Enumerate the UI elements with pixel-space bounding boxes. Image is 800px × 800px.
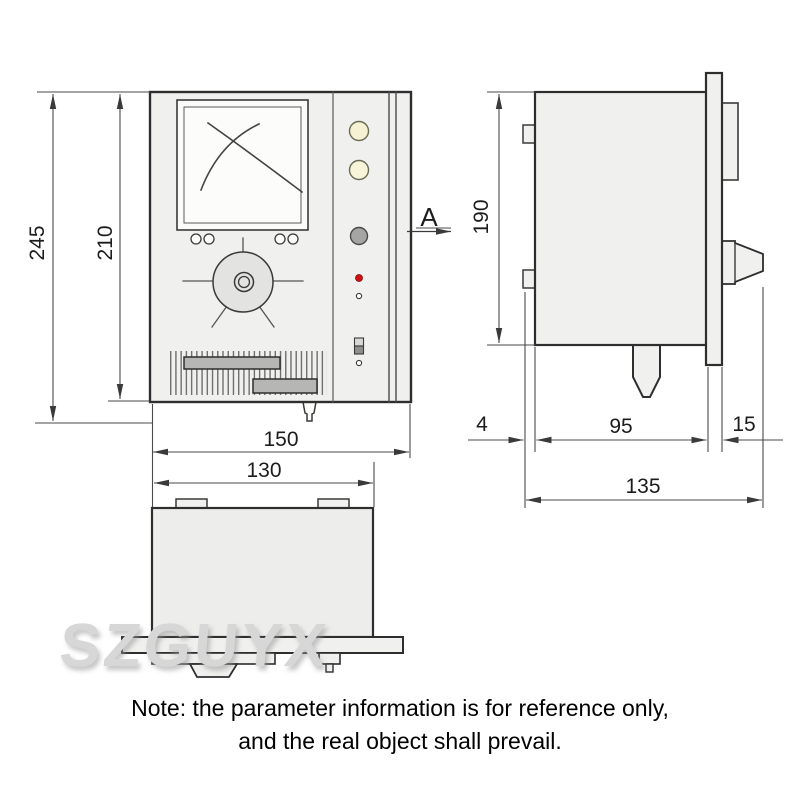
side-body [535,92,707,345]
dim-body-width: 130 [246,459,281,482]
bottom-rail-tab-right [318,499,349,508]
screw-hole [191,234,201,244]
section-view-marker: A [407,202,451,232]
dim-side-body-depth: 95 [609,415,632,438]
drawing-canvas: 245 210 150 130 190 4 95 15 135 A [0,0,800,800]
dim-side-tab-depth: 4 [476,413,488,436]
dim-side-knob-depth: 15 [732,413,755,436]
small-hole-upper [356,293,361,298]
toggle-switch[interactable] [355,338,364,354]
screw-hole [204,234,214,244]
note-line-1: Note: the parameter information is for r… [0,695,800,722]
dim-front-total-height: 245 [26,225,49,260]
small-hole-lower [356,360,361,365]
meter-display-screen [184,107,301,223]
side-bottom-pointer [633,345,660,397]
terminal-bar-lower [253,379,317,393]
front-bottom-tab [303,402,316,421]
side-view [523,73,763,397]
indicator-lamp-top [350,122,369,141]
led-red [356,275,363,282]
technical-drawing-page: 245 210 150 130 190 4 95 15 135 A SZGUYX… [0,0,800,800]
dial-knob[interactable] [213,252,273,312]
side-connector-block [722,103,738,180]
front-view [150,92,411,421]
screw-hole [275,234,285,244]
side-dial-knob-profile [722,241,763,284]
indicator-lamp-second [350,161,369,180]
bottom-rail-tab-left [176,499,207,508]
dim-side-body-height: 190 [470,199,493,234]
side-rail-tab-bottom [523,270,535,288]
push-button-gray[interactable] [351,228,368,245]
watermark-text: SZGUYX [57,610,332,680]
side-rail-tab-top [523,125,535,143]
terminal-bar-upper [184,357,280,369]
dim-side-total-depth: 135 [625,475,660,498]
side-front-bezel-plate [706,73,722,365]
dim-front-panel-height: 210 [94,225,117,260]
screw-hole [288,234,298,244]
dim-front-width: 150 [263,428,298,451]
note-line-2: and the real object shall prevail. [0,728,800,755]
